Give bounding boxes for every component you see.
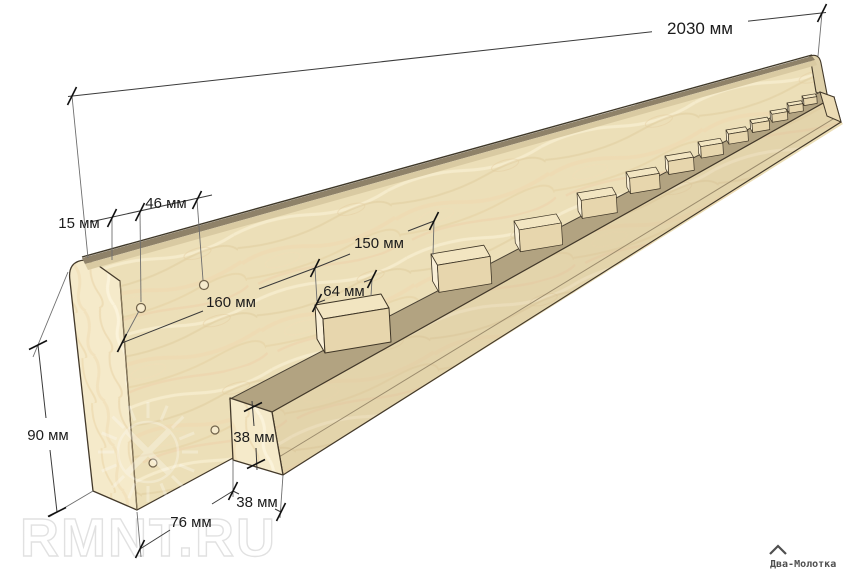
- dimension-label-total-length: 2030 мм: [667, 19, 733, 38]
- spacer-block: [698, 138, 723, 158]
- spacer-block: [431, 245, 492, 292]
- logo-text: Два-Молотка: [770, 559, 836, 570]
- spacer-block: [315, 294, 391, 353]
- site-logo: Два-Молотка: [770, 546, 836, 570]
- spacer-block: [750, 117, 770, 132]
- spacer-block: [726, 127, 748, 144]
- screw-hole: [200, 281, 209, 290]
- dimension-label-hole-spacing: 160 мм: [206, 294, 256, 311]
- dimension-label-top-edge-offset: 15 мм: [58, 215, 99, 232]
- dimension-label-board-height: 90 мм: [27, 427, 68, 444]
- spacer-block: [787, 101, 803, 114]
- spacer-block: [802, 94, 817, 106]
- spacer-block: [626, 167, 660, 194]
- spacer-block: [770, 108, 788, 122]
- dimension-label-board-thickness: 76 мм: [170, 514, 211, 531]
- dimension-label-rail-width: 38 мм: [236, 494, 277, 511]
- dimension-label-block-length: 64 мм: [323, 283, 364, 300]
- screw-hole: [137, 304, 146, 313]
- dimension-label-block-spacing: 150 мм: [354, 235, 404, 252]
- spacer-block: [665, 152, 694, 175]
- diagram-canvas: RMNT.RU: [0, 0, 850, 571]
- house-icon: [770, 546, 786, 554]
- screw-hole: [211, 426, 219, 434]
- dimension-tick: [193, 191, 202, 209]
- watermark-text: RMNT.RU: [20, 508, 277, 568]
- dimension-label-hole-end-offset: 46 мм: [145, 195, 186, 212]
- spacer-block: [514, 214, 563, 252]
- sunburst-watermark-icon: [98, 402, 198, 502]
- drawing-page: RMNT.RU: [0, 0, 850, 571]
- spacer-block: [577, 187, 617, 218]
- dimension-label-rail-height: 38 мм: [233, 429, 274, 446]
